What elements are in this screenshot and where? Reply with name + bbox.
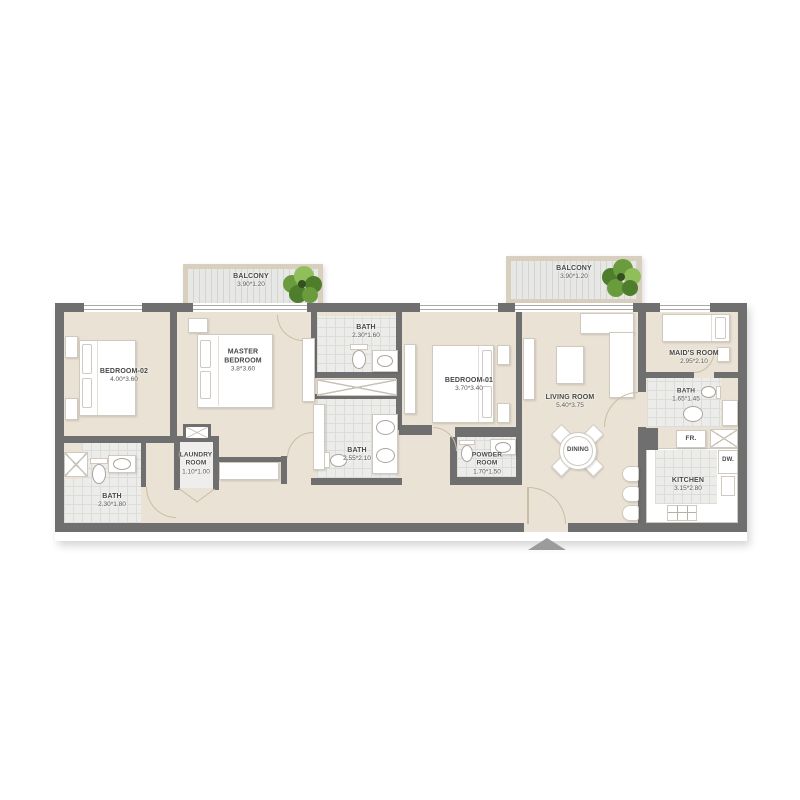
wardrobe-corridor <box>317 379 397 396</box>
bar-stool <box>622 505 639 521</box>
pillow <box>200 371 211 399</box>
room-label-dining: DINING <box>567 447 589 455</box>
plant-icon <box>283 266 323 304</box>
tv-unit <box>523 338 535 400</box>
toilet-bowl <box>92 464 106 484</box>
balcony-door-living <box>515 303 633 312</box>
wall-powder-bottom <box>450 477 522 485</box>
dishwasher-label: DW. <box>722 457 734 465</box>
room-label-balcony-right: BALCONY 3.90*1.20 <box>556 264 592 282</box>
bar-stool <box>622 486 639 502</box>
appliance-name: FR. <box>686 435 697 443</box>
wall-powder-right <box>516 427 522 485</box>
wall-living-left <box>516 312 522 438</box>
wall-bath-top-bottom <box>311 372 402 378</box>
pillow <box>82 344 92 374</box>
room-label-bath-mid: BATH 2.55*2.10 <box>343 446 371 464</box>
shaft-box <box>183 424 211 441</box>
nightstand <box>65 398 78 420</box>
floor-plan: BALCONY 3.90*1.20 BALCONY 3.90*1.20 BEDR… <box>0 0 800 800</box>
wall-living-kitchen-upper <box>638 312 646 392</box>
room-label-bedroom-01: BEDROOM-01 3.70*3.40 <box>445 376 493 394</box>
wall-bed01-bottom <box>399 425 432 435</box>
nightstand <box>497 345 510 365</box>
window-bedroom-01 <box>420 303 498 312</box>
fridge-label: FR. <box>686 435 697 443</box>
room-dims: 3.8*3.60 <box>218 366 268 374</box>
wall-hall-chunk <box>281 456 287 484</box>
room-label-bedroom-02: BEDROOM-02 4.00*3.60 <box>100 367 148 385</box>
wall-bed02-master <box>170 312 177 438</box>
sofa-top <box>580 313 634 334</box>
room-label-bath-top: BATH 2.30*1.60 <box>352 323 380 341</box>
window-bedroom-02 <box>84 303 142 312</box>
wall-maids-bottom-right <box>714 372 740 378</box>
room-dims: 3.90*1.20 <box>556 273 592 281</box>
room-label-living-room: LIVING ROOM 5.40*3.75 <box>546 393 595 411</box>
kitchen-sink <box>721 476 735 496</box>
pillow <box>82 378 92 408</box>
room-name: MASTER BEDROOM <box>218 348 268 366</box>
toilet-bowl <box>352 350 366 369</box>
room-name: BATH <box>98 492 126 501</box>
nightstand <box>497 403 510 423</box>
sink <box>376 420 395 435</box>
room-name: BEDROOM-01 <box>445 376 493 385</box>
wall-top <box>55 303 747 312</box>
room-label-laundry: LAUNDRY ROOM 1.10*1.00 <box>176 451 216 476</box>
appliance-name: DW. <box>722 457 734 465</box>
blanket-line <box>711 315 712 341</box>
room-dims: 2.30*1.80 <box>98 501 126 509</box>
toilet-bowl <box>701 386 716 398</box>
room-name: MAID'S ROOM <box>669 349 719 358</box>
room-name: BATH <box>352 323 380 332</box>
toilet-tank <box>716 386 721 399</box>
room-dims: 4.00*3.60 <box>100 376 148 384</box>
room-dims: 3.90*1.20 <box>233 281 269 289</box>
wall-bottom <box>55 523 747 532</box>
bar-stool <box>622 466 639 482</box>
wall-right <box>738 303 747 532</box>
nightstand <box>65 336 78 358</box>
shower-left-floor <box>64 479 88 523</box>
room-dims: 1.10*1.00 <box>176 468 216 476</box>
sink <box>376 448 395 463</box>
wall-bath-left-side <box>141 443 146 487</box>
room-dims: 2.95*2.10 <box>669 358 719 366</box>
wall-bath-maid-bottom <box>646 428 658 450</box>
room-dims: 2.55*2.10 <box>343 455 371 463</box>
room-label-bath-maid: BATH 1.65*1.45 <box>672 388 700 405</box>
wall-bath-left-top <box>64 436 176 443</box>
room-label-master-bedroom: MASTER BEDROOM 3.8*3.60 <box>218 348 268 375</box>
pillow <box>715 317 726 339</box>
room-dims: 3.70*3.40 <box>445 385 493 393</box>
wall-bath-mid-bottom <box>311 478 402 485</box>
nightstand <box>188 318 208 333</box>
closet-bath-left <box>64 452 88 477</box>
room-dims: 1.70*1.50 <box>466 468 508 476</box>
sink <box>683 406 703 422</box>
room-name: BALCONY <box>556 264 592 273</box>
sink <box>113 458 131 470</box>
room-dims: 3.15*2.80 <box>672 485 704 493</box>
room-name: LAUNDRY ROOM <box>176 451 216 468</box>
wall-powder-top <box>455 427 522 437</box>
room-label-maids-room: MAID'S ROOM 2.95*2.10 <box>669 349 719 367</box>
room-name: POWDER ROOM <box>466 451 508 468</box>
plant-icon <box>602 259 642 297</box>
room-name: LIVING ROOM <box>546 393 595 402</box>
window-maids-room <box>660 303 710 312</box>
wall-maids-bottom-left <box>646 372 694 378</box>
balcony-door-master <box>193 303 307 312</box>
kitchen-cabinet-x <box>710 429 738 448</box>
hall-bench <box>219 462 279 480</box>
bath-shelf <box>722 400 738 426</box>
wall-left <box>55 303 64 532</box>
room-name: BATH <box>343 446 371 455</box>
room-dims: 2.30*1.60 <box>352 332 380 340</box>
room-name: BEDROOM-02 <box>100 367 148 376</box>
sofa-side <box>609 332 634 398</box>
room-label-balcony-left: BALCONY 3.90*1.20 <box>233 272 269 290</box>
room-dims: 5.40*3.75 <box>546 402 595 410</box>
stove <box>667 505 697 521</box>
coffee-table <box>556 346 584 384</box>
room-name: DINING <box>567 447 589 455</box>
entrance-gap <box>524 523 568 532</box>
sink <box>377 355 393 367</box>
pillow <box>200 340 211 368</box>
wardrobe-bedroom-01 <box>404 344 416 414</box>
room-name: KITCHEN <box>672 476 704 485</box>
room-label-powder-room: POWDER ROOM 1.70*1.50 <box>466 451 508 476</box>
room-name: BALCONY <box>233 272 269 281</box>
wall-living-kitchen-lower <box>638 427 646 523</box>
room-label-bath-left: BATH 2.30*1.80 <box>98 492 126 510</box>
room-label-kitchen: KITCHEN 3.15*2.80 <box>672 476 704 494</box>
entrance-arrow <box>528 538 566 550</box>
blanket-line <box>97 341 98 415</box>
wardrobe-master <box>302 338 315 402</box>
room-dims: 1.65*1.45 <box>672 396 700 404</box>
